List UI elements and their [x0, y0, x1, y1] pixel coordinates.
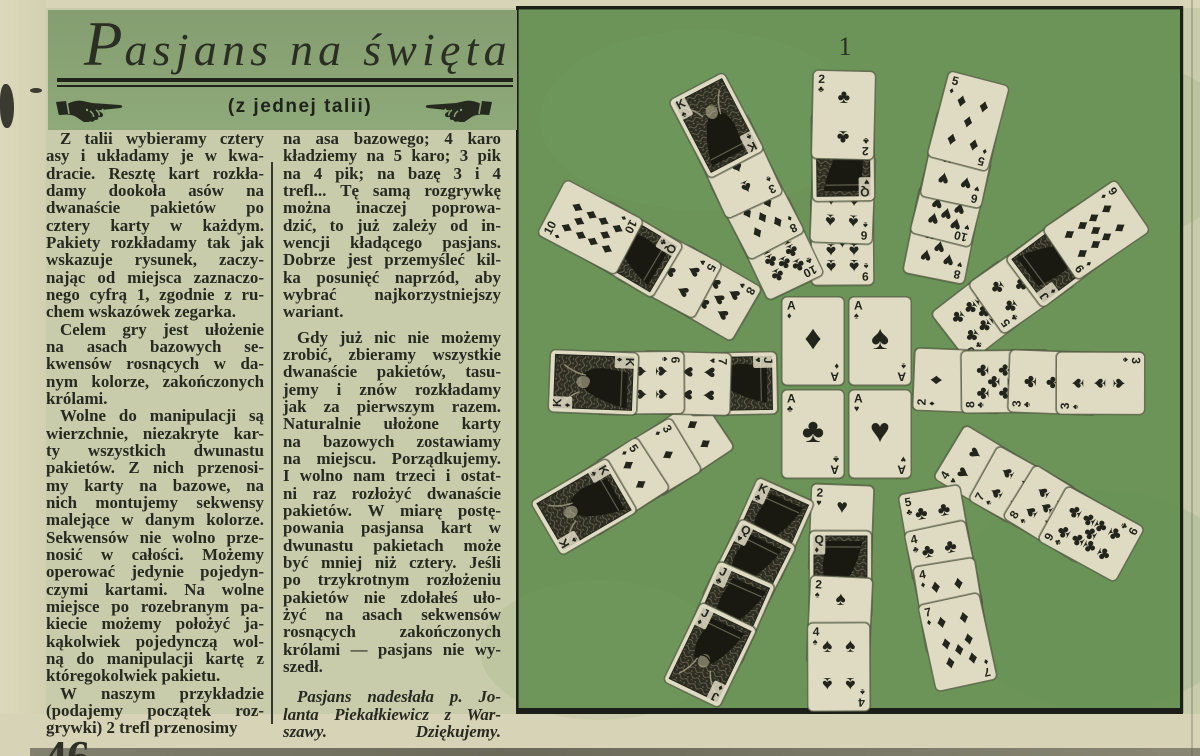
- svg-text:♣: ♣: [787, 404, 793, 414]
- svg-text:♥: ♥: [698, 389, 719, 401]
- svg-text:♦: ♦: [804, 319, 821, 357]
- svg-text:♣: ♣: [833, 455, 839, 465]
- svg-text:♠: ♠: [854, 311, 859, 321]
- svg-text:♠: ♠: [1109, 378, 1130, 388]
- svg-text:♥: ♥: [753, 357, 763, 363]
- svg-text:♣: ♣: [802, 412, 824, 450]
- svg-text:♦: ♦: [926, 374, 947, 385]
- svg-text:♠: ♠: [848, 210, 859, 231]
- svg-text:♠: ♠: [1070, 404, 1080, 409]
- svg-text:♠: ♠: [863, 220, 868, 230]
- svg-text:♣: ♣: [863, 136, 869, 146]
- svg-text:♠: ♠: [1121, 357, 1131, 362]
- svg-text:♠: ♠: [651, 366, 672, 376]
- svg-text:♠: ♠: [651, 389, 672, 399]
- svg-text:♦: ♦: [814, 544, 819, 554]
- svg-text:♠: ♠: [849, 255, 859, 276]
- svg-text:♠: ♠: [901, 362, 906, 372]
- svg-text:♣: ♣: [837, 126, 850, 147]
- svg-text:♣: ♣: [1022, 401, 1032, 407]
- svg-text:♠: ♠: [845, 636, 855, 657]
- svg-text:♥: ♥: [708, 358, 718, 364]
- svg-text:♣: ♣: [818, 84, 824, 94]
- svg-text:♣: ♣: [1020, 375, 1041, 388]
- svg-text:♠: ♠: [660, 357, 670, 362]
- svg-text:♠: ♠: [822, 636, 832, 657]
- svg-text:1: 1: [839, 32, 852, 61]
- svg-text:♣: ♣: [975, 402, 985, 408]
- svg-text:♦: ♦: [926, 401, 936, 406]
- svg-text:♥: ♥: [864, 177, 869, 187]
- svg-text:♠: ♠: [822, 673, 832, 694]
- svg-text:♣: ♣: [837, 87, 850, 108]
- svg-text:♦: ♦: [562, 402, 572, 407]
- svg-text:♠: ♠: [815, 589, 820, 599]
- svg-text:♠: ♠: [825, 210, 836, 231]
- svg-text:♦: ♦: [615, 357, 625, 362]
- svg-text:♠: ♠: [813, 637, 818, 647]
- svg-text:♥: ♥: [854, 404, 859, 414]
- svg-text:♠: ♠: [864, 261, 869, 271]
- svg-text:♠: ♠: [860, 687, 865, 697]
- svg-text:♦: ♦: [787, 311, 792, 321]
- svg-text:♠: ♠: [871, 319, 889, 357]
- svg-text:♥: ♥: [870, 412, 890, 450]
- svg-text:♦: ♦: [834, 362, 839, 372]
- svg-text:♠: ♠: [835, 589, 846, 610]
- svg-text:♠: ♠: [1067, 378, 1088, 388]
- svg-text:♠: ♠: [1089, 378, 1110, 388]
- svg-text:♥: ♥: [816, 498, 822, 508]
- svg-text:♥: ♥: [901, 455, 906, 465]
- svg-text:♥: ♥: [699, 366, 720, 378]
- svg-text:♣: ♣: [972, 364, 993, 377]
- svg-text:♠: ♠: [845, 673, 855, 694]
- svg-text:♠: ♠: [826, 255, 836, 276]
- svg-text:♥: ♥: [836, 497, 848, 518]
- svg-text:♣: ♣: [983, 375, 1004, 388]
